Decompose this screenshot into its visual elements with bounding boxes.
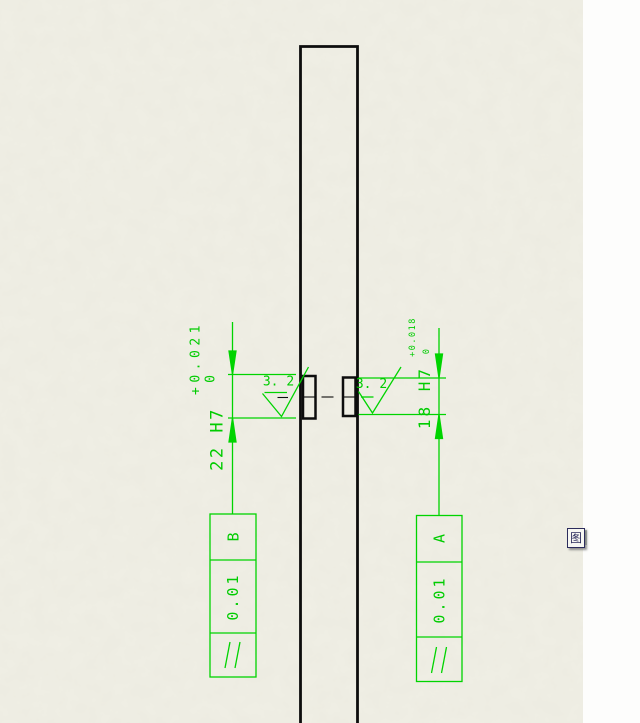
arrow-up-icon xyxy=(436,415,443,439)
surface-finish-left-value: 3. 2 xyxy=(263,375,294,390)
dimension-left-bore xyxy=(228,322,296,514)
sheet-icon-button[interactable]: 图 xyxy=(567,528,585,548)
part-outline xyxy=(301,47,358,723)
arrow-down-icon xyxy=(229,351,236,375)
fcf-a-datum: A xyxy=(431,534,449,543)
cad-viewport[interactable]: 22 H7 +0.021 0 18 H7 +0.018 0 3. 2 3. 2 … xyxy=(0,0,640,723)
dim-left-value: 22 H7 xyxy=(208,407,228,471)
arrow-up-icon xyxy=(229,418,236,442)
fcf-b-tolerance: 0.01 xyxy=(224,572,242,620)
surface-finish-right-value: 3. 2 xyxy=(356,377,387,392)
fcf-b-datum: B xyxy=(225,532,243,541)
dim-left-lower-tol: 0 xyxy=(204,375,219,383)
fcf-a-tolerance: 0.01 xyxy=(431,575,449,623)
arrow-down-icon xyxy=(436,354,443,378)
parallelism-icon xyxy=(432,647,447,673)
dim-right-lower-tol: 0 xyxy=(422,349,432,354)
dim-right-upper-tol: +0.018 xyxy=(408,317,418,357)
dim-right-value: 18 H7 xyxy=(415,366,434,429)
dim-left-upper-tol: +0.021 xyxy=(189,321,204,395)
drawing-linework: 22 H7 +0.021 0 18 H7 +0.018 0 3. 2 3. 2 … xyxy=(0,0,640,723)
parallelism-icon xyxy=(225,642,240,668)
